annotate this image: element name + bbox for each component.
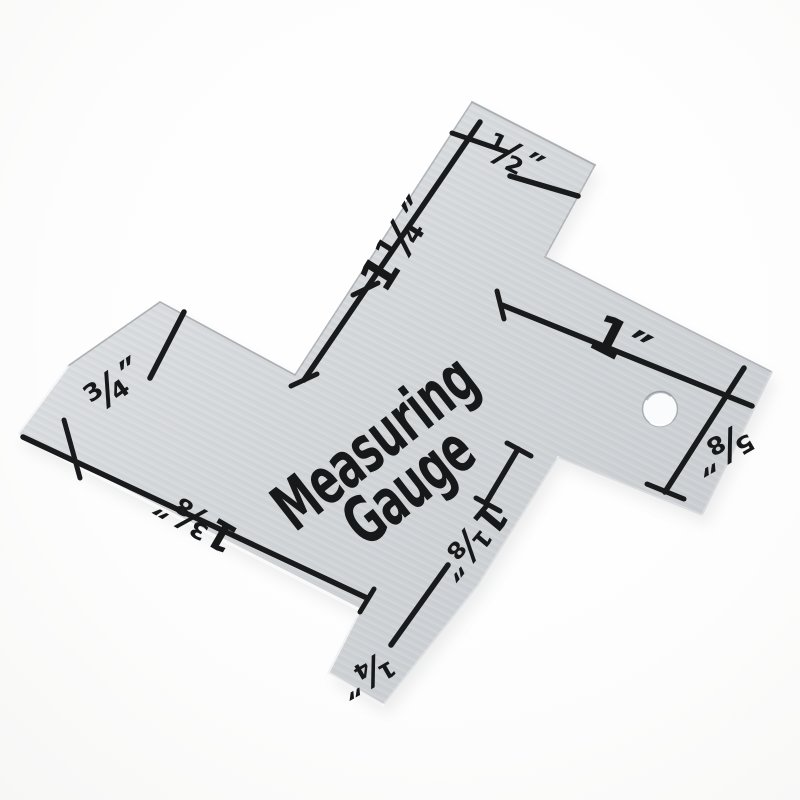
measuring-gauge-plate: ½″ 1¼″ 1″ ⅝″ ¾″ 1⅜″ 1⅛″ ¼″ Measuring Gau… — [17, 102, 772, 708]
product-photo: ½″ 1¼″ 1″ ⅝″ ¾″ 1⅜″ 1⅛″ ¼″ Measuring Gau… — [0, 0, 800, 800]
mounting-hole — [643, 392, 678, 427]
measuring-gauge-image: ½″ 1¼″ 1″ ⅝″ ¾″ 1⅜″ 1⅛″ ¼″ Measuring Gau… — [0, 0, 800, 800]
